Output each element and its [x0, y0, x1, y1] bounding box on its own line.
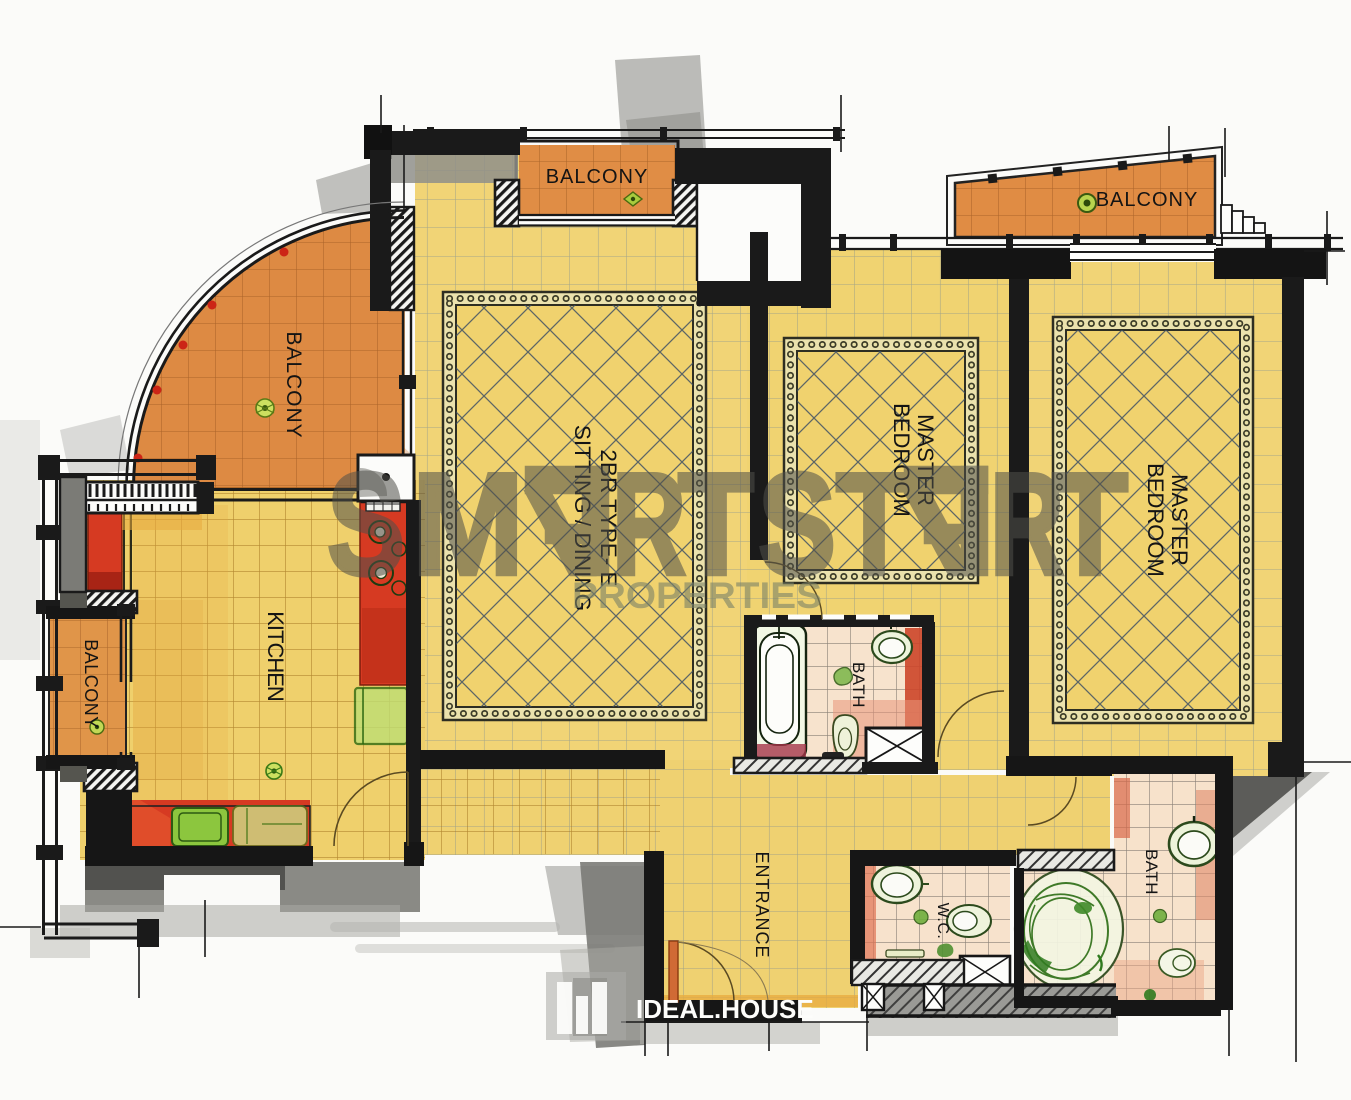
- svg-text:W.C.: W.C.: [934, 903, 951, 940]
- svg-text:T: T: [836, 443, 912, 605]
- svg-text:S: S: [327, 443, 405, 605]
- svg-text:T: T: [1052, 443, 1128, 605]
- svg-text:BALCONY: BALCONY: [1096, 189, 1199, 211]
- svg-text:ENTRANCE: ENTRANCE: [752, 851, 772, 958]
- svg-text:M: M: [412, 442, 524, 605]
- svg-text:BEDROOM: BEDROOM: [1143, 463, 1168, 577]
- svg-text:KITCHEN: KITCHEN: [263, 611, 288, 701]
- svg-text:BALCONY: BALCONY: [282, 331, 305, 438]
- svg-text:IDEAL.HOUSE: IDEAL.HOUSE: [636, 994, 814, 1024]
- svg-text:BATH: BATH: [1142, 849, 1161, 895]
- svg-text:BALCONY: BALCONY: [546, 166, 649, 188]
- svg-text:BATH: BATH: [849, 662, 868, 708]
- svg-text:BALCONY: BALCONY: [81, 639, 101, 729]
- svg-text:MASTER: MASTER: [1167, 474, 1192, 566]
- svg-text:PROPERTIES: PROPERTIES: [572, 575, 822, 616]
